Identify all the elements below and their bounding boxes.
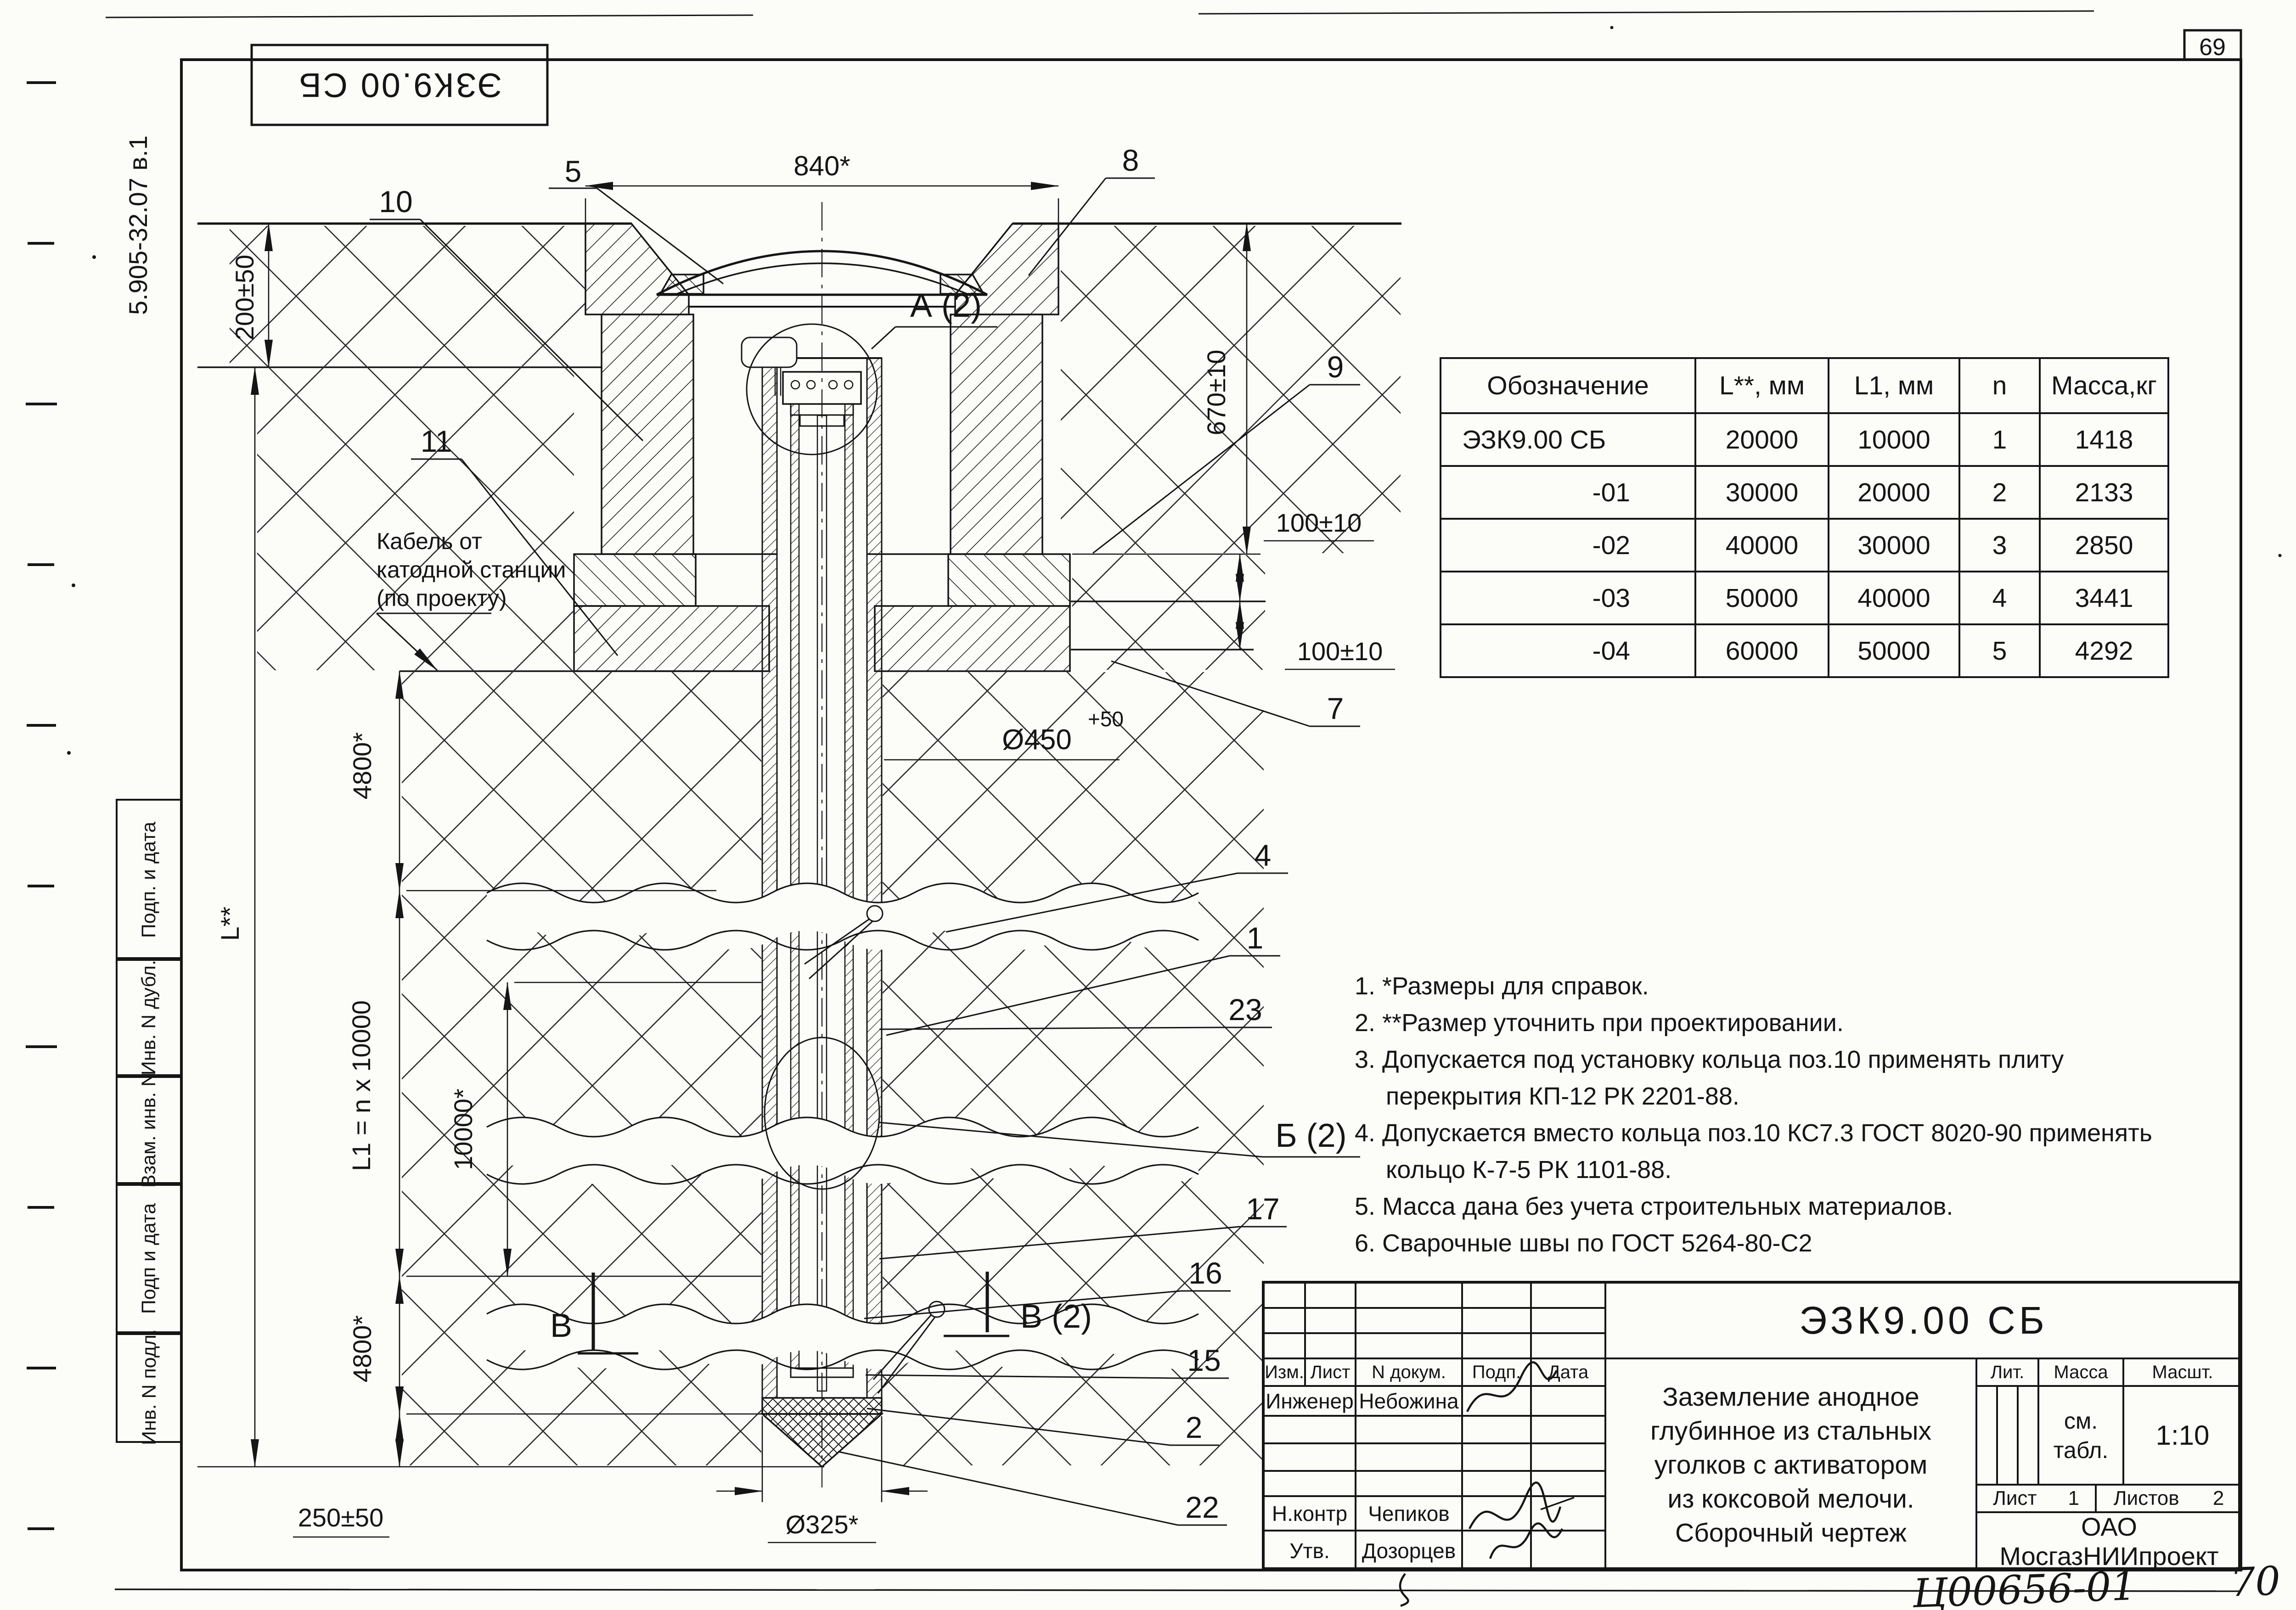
scale-value: 1:10	[2124, 1387, 2241, 1486]
role-engineer: Инженер	[1265, 1387, 1356, 1417]
table-row: -04 60000 50000 5 4292	[1441, 624, 2168, 677]
dim-250: 250±50	[298, 1503, 383, 1532]
cell-L: 50000	[1695, 572, 1829, 624]
cell-L1: 50000	[1829, 624, 1959, 677]
cell-n: 1	[1959, 413, 2040, 466]
dim-4800-bottom: 4800*	[348, 1315, 377, 1382]
note-line-2: 2. **Размер уточнить при проектировании.	[1355, 1004, 2190, 1041]
name-ncontr: Чепиков	[1356, 1497, 1463, 1531]
name-utv: Дозорцев	[1356, 1531, 1463, 1570]
col-mass: Масса,кг	[2040, 358, 2168, 413]
callout-22: 22	[1185, 1490, 1219, 1524]
name-utv-label: Дозорцев	[1362, 1538, 1456, 1563]
note-line-3: 3. Допускается под установку кольца поз.…	[1355, 1041, 2190, 1078]
cell-L: 40000	[1695, 519, 1829, 572]
org-line: ОАО	[2081, 1512, 2137, 1542]
stamp-inv-podl: Инв. N подл.	[116, 1331, 183, 1443]
callout-23: 23	[1228, 993, 1262, 1027]
cell-n: 5	[1959, 624, 2040, 677]
dim-670: 670±10	[1202, 350, 1231, 435]
dim-100b: 100±10	[1297, 637, 1383, 666]
table-header-row: Обозначение L**, мм L1, мм n Масса,кг	[1441, 358, 2168, 413]
handwritten-page: 70	[2229, 1558, 2281, 1606]
table-row: -03 50000 40000 4 3441	[1441, 572, 2168, 624]
cable-note: Кабель от катодной станции (по проекту)	[377, 527, 566, 612]
hdr-list: Лист	[1306, 1359, 1356, 1387]
section-v-label: В	[550, 1307, 572, 1344]
callout-10: 10	[379, 185, 412, 219]
title-line: Сборочный чертеж	[1675, 1516, 1907, 1550]
cell-mass: 2133	[2040, 466, 2168, 519]
table-row: -02 40000 30000 3 2850	[1441, 519, 2168, 572]
role-ncontr: Н.контр	[1265, 1497, 1356, 1531]
mass-value-line: табл.	[2054, 1436, 2109, 1465]
top-designation-label: ЭЗК9.00 СБ	[297, 66, 502, 105]
role-utv: Утв.	[1265, 1531, 1356, 1570]
mass-value: см. табл.	[2039, 1387, 2124, 1486]
name-ncontr-label: Чепиков	[1368, 1501, 1450, 1526]
sheet-value: 1	[2068, 1487, 2079, 1510]
hdr-izm-label: Изм.	[1265, 1362, 1304, 1383]
role-engineer-label: Инженер	[1266, 1389, 1353, 1414]
stamp-label: Подп. и дата	[138, 822, 161, 938]
callout-2: 2	[1186, 1410, 1203, 1444]
callout-17: 17	[1246, 1192, 1279, 1226]
hdr-list-label: Лист	[1311, 1362, 1351, 1383]
stamp-label: Инв. N подл.	[138, 1329, 161, 1445]
col-L: L**, мм	[1695, 358, 1829, 413]
cell-L1: 30000	[1829, 519, 1959, 572]
role-ncontr-label: Н.контр	[1272, 1501, 1347, 1526]
cell-n: 4	[1959, 572, 2040, 624]
drawing-sheet: 69 840* 200±50 670±10 100±10 100±10 Ø450…	[0, 0, 2296, 1610]
callout-16: 16	[1188, 1256, 1222, 1290]
cell-L: 20000	[1695, 413, 1829, 466]
cell-mass: 3441	[2040, 572, 2168, 624]
cell-mass: 1418	[2040, 413, 2168, 466]
note-line-4b: кольцо К-7-5 РК 1101-88.	[1386, 1151, 2190, 1188]
callout-11: 11	[421, 424, 452, 458]
hdr-doc-label: N докум.	[1372, 1362, 1446, 1383]
dim-840: 840*	[793, 151, 850, 181]
title-line: из коксовой мелочи.	[1667, 1482, 1914, 1516]
section-a-label: А (2)	[910, 287, 982, 324]
note-line-5: 5. Масса дана без учета строительных мат…	[1355, 1188, 2190, 1225]
doc-code-vertical: 5.905-32.07 в.1	[113, 115, 163, 335]
designation-cell: ЭЗК9.00 СБ	[1606, 1284, 2241, 1359]
hdr-izm: Изм.	[1265, 1359, 1306, 1387]
note-line-4: 4. Допускается вместо кольца поз.10 КС7.…	[1355, 1115, 2190, 1151]
cable-note-line: Кабель от	[377, 527, 566, 555]
section-b-label: Б (2)	[1275, 1117, 1346, 1154]
handwritten-code: Ц00656-01	[1912, 1563, 2137, 1610]
sheets-value: 2	[2213, 1487, 2224, 1510]
cell-designation: -04	[1441, 624, 1695, 677]
cell-L1: 20000	[1829, 466, 1959, 519]
variants-table: Обозначение L**, мм L1, мм n Масса,кг ЭЗ…	[1440, 357, 2169, 678]
title-block: Изм. Лист N докум. Подп. Дата Инженер Не…	[1262, 1281, 2241, 1570]
sheet-cell: Лист 1	[1977, 1486, 2097, 1513]
note-line-6: 6. Сварочные швы по ГОСТ 5264-80-С2	[1355, 1225, 2190, 1262]
stamp-label: Инв. N дубл.	[138, 960, 161, 1075]
dim-450-sup: +50	[1088, 707, 1124, 731]
title-line: глубинное из стальных	[1650, 1414, 1931, 1448]
stamp-label: Подп и дата	[138, 1203, 161, 1314]
designation-text: ЭЗК9.00 СБ	[1799, 1298, 2048, 1343]
mass-label: Масса	[2054, 1362, 2108, 1383]
cell-L: 60000	[1695, 624, 1829, 677]
scale-header: Масшт.	[2124, 1359, 2241, 1387]
cable-note-line: катодной станции	[377, 555, 566, 584]
cell-designation: -03	[1441, 572, 1695, 624]
page-number: 69	[2199, 34, 2226, 61]
name-engineer: Небожина	[1356, 1387, 1463, 1417]
hdr-podp-label: Подп.	[1472, 1362, 1521, 1383]
cell-designation: ЭЗК9.00 СБ	[1441, 413, 1695, 466]
cell-L1: 40000	[1829, 572, 1959, 624]
title-line: Заземление анодное	[1662, 1380, 1919, 1414]
dim-100a: 100±10	[1276, 508, 1362, 537]
sheet-label: Лист	[1993, 1487, 2037, 1510]
stamp-podp-data-2: Подп и дата	[116, 1182, 183, 1335]
stamp-inv-dubl: Инв. N дубл.	[116, 957, 183, 1078]
mass-header: Масса	[2039, 1359, 2124, 1387]
cell-n: 2	[1959, 466, 2040, 519]
name-engineer-label: Небожина	[1359, 1389, 1458, 1414]
table-row: ЭЗК9.00 СБ 20000 10000 1 1418	[1441, 413, 2168, 466]
notes-block: 1. *Размеры для справок. 2. **Размер уто…	[1355, 968, 2190, 1262]
callout-9: 9	[1327, 350, 1344, 384]
hdr-doc: N докум.	[1356, 1359, 1463, 1387]
col-n: n	[1959, 358, 2040, 413]
dim-450: Ø450	[1002, 724, 1072, 756]
note-line-3b: перекрытия КП-12 РК 2201-88.	[1386, 1078, 2190, 1115]
scale-label: Масшт.	[2152, 1362, 2213, 1383]
hdr-data: Дата	[1532, 1359, 1606, 1387]
mass-value-line: см.	[2064, 1406, 2098, 1436]
cable-note-line: (по проекту)	[377, 584, 566, 612]
lit-label: Лит.	[1991, 1362, 2025, 1383]
doc-code-text: 5.905-32.07 в.1	[123, 135, 153, 315]
stamp-vzam-inv: Взам. инв. N	[116, 1074, 183, 1186]
cell-mass: 4292	[2040, 624, 2168, 677]
note-line-1: 1. *Размеры для справок.	[1355, 968, 2190, 1004]
dim-L1: L1 = n x 10000	[347, 1000, 376, 1171]
callout-15: 15	[1187, 1343, 1221, 1377]
section-v2-label: В (2)	[1020, 1298, 1092, 1335]
col-designation: Обозначение	[1441, 358, 1695, 413]
title-cell: Заземление анодное глубинное из стальных…	[1606, 1359, 1977, 1570]
title-line: уголков с активатором	[1654, 1448, 1928, 1482]
stamp-label: Взам. инв. N	[138, 1072, 161, 1188]
callout-4: 4	[1255, 838, 1272, 872]
callout-8: 8	[1122, 143, 1139, 177]
hdr-podp: Подп.	[1463, 1359, 1532, 1387]
scale-value-text: 1:10	[2156, 1419, 2210, 1451]
dim-4800-top: 4800*	[348, 732, 377, 799]
hdr-data-label: Дата	[1548, 1362, 1589, 1383]
cell-designation: -02	[1441, 519, 1695, 572]
dim-L: L**	[215, 907, 244, 941]
callout-5: 5	[565, 154, 582, 188]
col-L1: L1, мм	[1829, 358, 1959, 413]
lit-header: Лит.	[1977, 1359, 2039, 1387]
cell-L1: 10000	[1829, 413, 1959, 466]
sheets-label: Листов	[2114, 1487, 2179, 1510]
callout-1: 1	[1247, 921, 1264, 955]
cell-mass: 2850	[2040, 519, 2168, 572]
callout-7: 7	[1327, 691, 1344, 725]
dim-200: 200±50	[230, 255, 259, 340]
cell-designation: -01	[1441, 466, 1695, 519]
cell-L: 30000	[1695, 466, 1829, 519]
sheets-cell: Листов 2	[2097, 1486, 2241, 1513]
dim-10000: 10000*	[449, 1088, 478, 1170]
role-utv-label: Утв.	[1289, 1538, 1330, 1563]
cell-n: 3	[1959, 519, 2040, 572]
dim-325: Ø325*	[786, 1510, 859, 1539]
top-designation-box: ЭЗК9.00 СБ	[252, 45, 547, 125]
table-row: -01 30000 20000 2 2133	[1441, 466, 2168, 519]
stamp-podp-data-1: Подп. и дата	[116, 799, 183, 961]
